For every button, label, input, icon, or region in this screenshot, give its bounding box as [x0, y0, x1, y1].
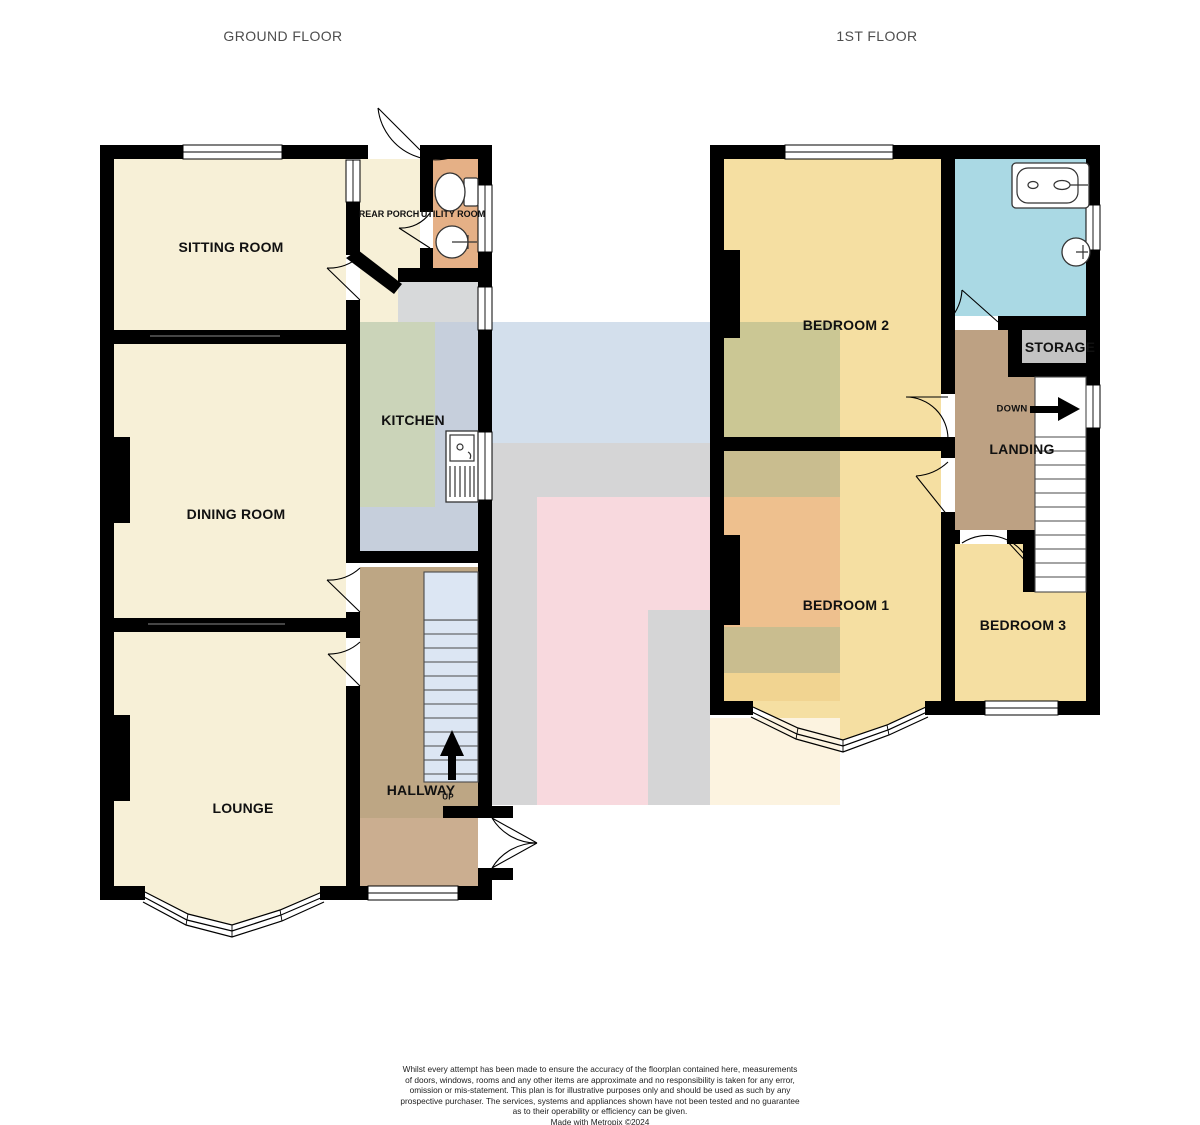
disclaimer-line: omission or mis-statement. This plan is … — [0, 1085, 1200, 1096]
room-label-bedroom1: BEDROOM 1 — [803, 597, 890, 613]
kitchen-sink-unit-icon — [446, 431, 478, 502]
room-label-rear-porch: REAR PORCH — [359, 209, 420, 219]
dining-chimney-breast — [100, 437, 130, 523]
front-door-jamb-top — [443, 806, 513, 818]
overlay-cream-patch — [710, 718, 840, 805]
first-floor-stairs — [1030, 377, 1086, 592]
toilet-bowl-icon — [435, 173, 465, 211]
corridor-gray-patch — [398, 282, 478, 322]
overlay-gray-strip — [648, 610, 710, 805]
disclaimer-line: of doors, windows, rooms and any other i… — [0, 1075, 1200, 1086]
disclaimer-line: Whilst every attempt has been made to en… — [0, 1064, 1200, 1075]
room-label-utility-room: UTILITY ROOM — [421, 209, 485, 219]
bedroom1-chimney-breast — [710, 535, 740, 625]
floorplan-drawing — [0, 0, 1200, 1125]
stairs-down-label: DOWN — [997, 404, 1028, 415]
first-floor-title: 1ST FLOOR — [836, 28, 917, 44]
floorplan-page: GROUND FLOOR 1ST FLOOR SITTING ROOM DINI… — [0, 0, 1200, 1125]
toilet-cistern-icon — [464, 178, 478, 206]
ground-floor-title: GROUND FLOOR — [223, 28, 342, 44]
disclaimer-line: prospective purchaser. The services, sys… — [0, 1096, 1200, 1107]
down-arrow-shaft — [1030, 406, 1060, 413]
bedroom1-olive-band-bottom — [724, 627, 840, 673]
lounge-floor — [114, 632, 346, 886]
disclaimer-credit: Made with Metropix ©2024 — [0, 1117, 1200, 1125]
stairs-up-label: UP — [442, 793, 454, 802]
disclaimer-block: Whilst every attempt has been made to en… — [0, 1064, 1200, 1125]
room-label-bedroom3: BEDROOM 3 — [980, 617, 1067, 633]
front-porch-floor — [360, 818, 478, 886]
bedroom2-olive-band — [724, 322, 840, 437]
room-label-landing: LANDING — [989, 441, 1054, 457]
bedroom2-chimney-breast — [710, 250, 740, 338]
overlay-blue-patch — [492, 322, 710, 443]
lounge-chimney-breast — [100, 715, 130, 801]
bedroom1-olive-band-top — [724, 451, 840, 497]
front-door-jamb-bottom — [478, 868, 513, 880]
dining-room-floor — [114, 344, 346, 618]
room-label-kitchen: KITCHEN — [381, 412, 445, 428]
ground-floor-stairs — [424, 572, 478, 782]
room-label-dining-room: DINING ROOM — [187, 506, 286, 522]
bedroom1-yellow-band — [724, 673, 840, 701]
room-label-bedroom2: BEDROOM 2 — [803, 317, 890, 333]
up-arrow-shaft — [448, 754, 456, 780]
room-label-storage: STORAGE — [1025, 339, 1095, 355]
hallway-front-door — [492, 818, 537, 868]
room-label-lounge: LOUNGE — [212, 800, 273, 816]
room-label-sitting-room: SITTING ROOM — [178, 239, 283, 255]
disclaimer-line: as to their operability or efficiency ca… — [0, 1106, 1200, 1117]
kitchen-fixtures — [446, 431, 478, 502]
